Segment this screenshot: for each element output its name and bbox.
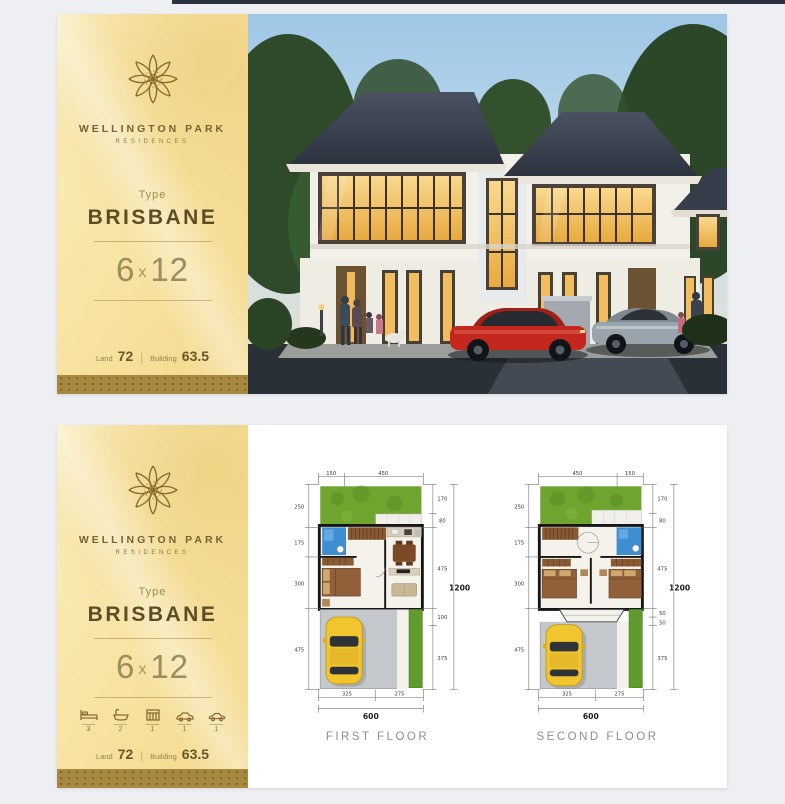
divider-rule xyxy=(94,638,212,639)
svg-text:80: 80 xyxy=(659,519,666,525)
brand-name: WELLINGTON PARK xyxy=(79,534,226,546)
floorplans-area: 150 450 250 175 300 475 xyxy=(248,425,727,788)
second-floor-figure: 450 150 250 175 300 475 xyxy=(500,451,696,743)
bath-count: 2 xyxy=(114,724,128,733)
stairs xyxy=(542,527,578,539)
amenities-row: 3 2 1 xyxy=(79,707,227,733)
type-name: BRISBANE xyxy=(88,603,218,627)
second-floor-caption: SECOND FLOOR xyxy=(536,731,658,743)
brand-subtitle: RESIDENCES xyxy=(115,550,189,556)
svg-text:475: 475 xyxy=(294,647,304,653)
type-block: Type BRISBANE 6 x 12 xyxy=(88,189,218,310)
svg-text:300: 300 xyxy=(514,582,524,588)
brand-logo-flower-icon xyxy=(124,461,182,524)
svg-text:175: 175 xyxy=(514,541,524,547)
svg-text:475: 475 xyxy=(437,566,447,572)
amenity-bath: 2 xyxy=(111,707,131,733)
divider-rule xyxy=(94,300,212,301)
balcony xyxy=(559,609,624,621)
kitchen xyxy=(387,527,421,537)
floorplan-panel: WELLINGTON PARK RESIDENCES Type BRISBANE… xyxy=(57,425,727,788)
amenity-carport: 1 xyxy=(175,707,195,733)
svg-text:325: 325 xyxy=(341,691,351,697)
building-label: Building xyxy=(150,354,177,363)
svg-text:50: 50 xyxy=(659,611,666,617)
svg-text:475: 475 xyxy=(657,566,667,572)
svg-text:150: 150 xyxy=(624,471,634,477)
brand-logo-flower-icon xyxy=(124,50,182,113)
land-label: Land xyxy=(96,752,113,761)
svg-text:475: 475 xyxy=(514,647,524,653)
size-length: 12 xyxy=(150,648,189,686)
upper-window-left xyxy=(318,172,466,244)
divider-rule xyxy=(94,241,212,242)
yellow-car xyxy=(323,617,366,687)
land-value: 72 xyxy=(118,348,134,364)
stove-icon xyxy=(143,707,163,722)
unit-size: 6 x 12 xyxy=(116,251,189,289)
amenity-car: 1 xyxy=(207,707,227,733)
brand-name: WELLINGTON PARK xyxy=(79,123,226,135)
size-length: 12 xyxy=(150,251,189,289)
brochure-page: WELLINGTON PARK RESIDENCES Type BRISBANE… xyxy=(0,0,785,804)
upper-window-center xyxy=(486,178,518,290)
previous-panel-edge xyxy=(172,0,785,4)
side-garden-strip xyxy=(629,609,642,687)
svg-text:450: 450 xyxy=(572,471,582,477)
building-value: 63.5 xyxy=(182,348,209,364)
type-block: Type BRISBANE 6 x 12 xyxy=(88,586,218,707)
first-floor-caption: FIRST FLOOR xyxy=(326,731,429,743)
land-building-divider: | xyxy=(138,750,145,762)
land-building-row: Land 72 | Building 63.5 xyxy=(96,348,209,364)
stairs xyxy=(347,527,385,539)
stove-count: 1 xyxy=(146,724,160,733)
brand-subtitle: RESIDENCES xyxy=(115,139,189,145)
wardrobe xyxy=(322,558,353,566)
land-value: 72 xyxy=(118,746,134,762)
second-floor-plan: 450 150 250 175 300 475 xyxy=(500,451,696,723)
brand-sidebar-bottom: WELLINGTON PARK RESIDENCES Type BRISBANE… xyxy=(57,425,248,788)
svg-text:175: 175 xyxy=(294,541,304,547)
unit-size: 6 x 12 xyxy=(116,648,189,686)
bed-icon xyxy=(79,707,99,722)
svg-text:450: 450 xyxy=(378,471,388,477)
type-name: BRISBANE xyxy=(88,206,218,230)
garden-area xyxy=(320,485,421,527)
carport-icon xyxy=(175,707,195,722)
building-value: 63.5 xyxy=(182,746,209,762)
bed-count: 3 xyxy=(82,724,96,733)
size-x: x xyxy=(138,264,147,282)
land-building-divider: | xyxy=(138,352,145,364)
upper-window-right xyxy=(532,184,656,246)
first-floor-figure: 150 450 250 175 300 475 xyxy=(280,451,476,743)
bathroom xyxy=(322,527,346,555)
building-label: Building xyxy=(150,752,177,761)
house-render-illustration xyxy=(248,14,727,394)
amenity-bed: 3 xyxy=(79,707,99,733)
svg-text:250: 250 xyxy=(294,504,304,510)
car-count: 1 xyxy=(210,724,224,733)
amenity-stove: 1 xyxy=(143,707,163,733)
hero-panel: WELLINGTON PARK RESIDENCES Type BRISBANE… xyxy=(57,14,727,394)
size-width: 6 xyxy=(116,648,135,686)
type-label: Type xyxy=(139,586,167,598)
land-building-row: Land 72 | Building 63.5 xyxy=(96,746,209,762)
bath-icon xyxy=(111,707,131,722)
first-floor-plan: 150 450 250 175 300 475 xyxy=(280,451,476,723)
svg-text:300: 300 xyxy=(294,582,304,588)
svg-text:170: 170 xyxy=(437,497,447,503)
svg-text:1200: 1200 xyxy=(448,583,469,592)
gold-footer-strip xyxy=(57,769,248,788)
svg-text:250: 250 xyxy=(514,504,524,510)
svg-text:275: 275 xyxy=(614,691,624,697)
svg-text:375: 375 xyxy=(657,656,667,662)
divider-rule xyxy=(94,697,212,698)
svg-text:600: 600 xyxy=(362,712,378,721)
land-label: Land xyxy=(96,354,113,363)
carport-count: 1 xyxy=(178,724,192,733)
hero-photo xyxy=(248,14,727,394)
svg-text:170: 170 xyxy=(657,497,667,503)
brand-sidebar-top: WELLINGTON PARK RESIDENCES Type BRISBANE… xyxy=(57,14,248,394)
upper-window-far-right xyxy=(696,214,720,250)
svg-text:100: 100 xyxy=(437,615,447,621)
svg-text:1200: 1200 xyxy=(668,583,689,592)
garden-area xyxy=(540,486,641,527)
bathroom xyxy=(616,527,641,555)
svg-text:325: 325 xyxy=(561,691,571,697)
svg-text:150: 150 xyxy=(326,471,336,477)
gold-footer-strip xyxy=(57,375,248,394)
svg-text:275: 275 xyxy=(394,691,404,697)
car-icon xyxy=(207,707,227,722)
size-x: x xyxy=(138,661,147,679)
svg-text:80: 80 xyxy=(439,519,446,525)
side-garden-strip xyxy=(409,609,422,687)
size-width: 6 xyxy=(116,251,135,289)
svg-text:600: 600 xyxy=(582,712,598,721)
type-label: Type xyxy=(139,189,167,201)
svg-text:375: 375 xyxy=(437,656,447,662)
yellow-car xyxy=(543,625,586,689)
svg-text:50: 50 xyxy=(659,621,666,627)
